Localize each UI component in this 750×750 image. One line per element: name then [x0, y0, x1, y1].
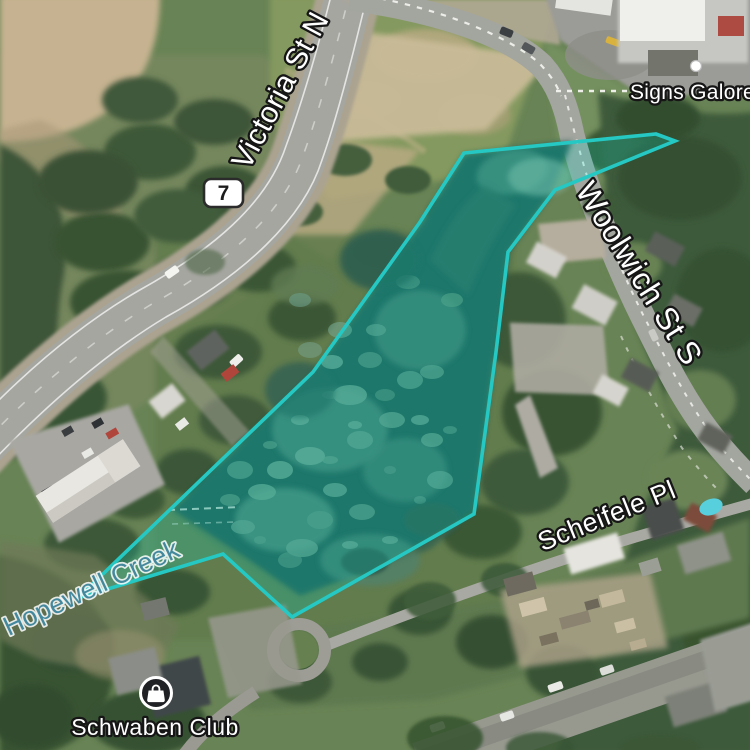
- svg-text:7: 7: [218, 182, 230, 205]
- svg-text:Schwaben Club: Schwaben Club: [71, 714, 239, 740]
- svg-text:Signs Galore: Signs Galore: [630, 81, 750, 104]
